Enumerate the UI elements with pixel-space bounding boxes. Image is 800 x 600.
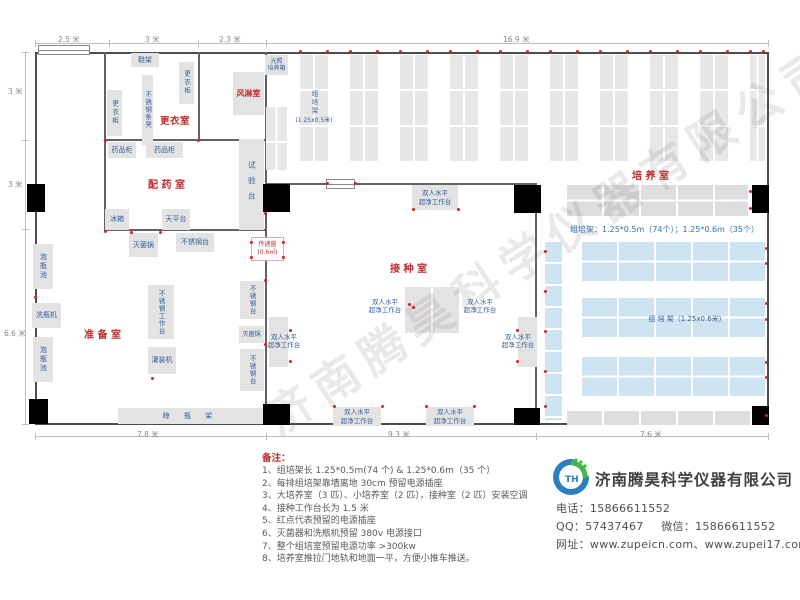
note-item: 2、每排组培架靠墙离地 30cm 预留电源插座 bbox=[262, 476, 443, 489]
power-outlet-dot bbox=[676, 50, 679, 53]
clean-bench-label: 超净工作台 bbox=[366, 306, 404, 314]
clean-bench-label: 超净工作台 bbox=[461, 306, 499, 314]
dimension-tick bbox=[768, 40, 769, 47]
power-outlet-dot bbox=[326, 182, 329, 185]
soak-pool-1: 泡瓶池 bbox=[33, 244, 53, 289]
power-outlet-dot bbox=[282, 241, 285, 244]
dim-top-3: 2.3 米 bbox=[219, 34, 241, 45]
balance-table: 天平台 bbox=[162, 209, 190, 230]
filling-machine: 灌装机 bbox=[148, 347, 176, 374]
dim-bottom-2: 9.3 米 bbox=[388, 429, 410, 440]
culture-rack-strip-short bbox=[266, 107, 287, 170]
note-item: 7、整个组培室预留电源功率 >300kw bbox=[262, 539, 416, 552]
structural-column bbox=[27, 184, 45, 212]
power-outlet-dot bbox=[765, 318, 768, 321]
power-outlet-dot bbox=[381, 405, 384, 408]
bottle-washer: 洗瓶机 bbox=[32, 303, 61, 328]
dim-left-1: 3 米 bbox=[8, 86, 23, 97]
dim-bottom-3: 7.6 米 bbox=[640, 429, 662, 440]
room-label-prep: 准 备 室 bbox=[84, 326, 121, 341]
power-outlet-dot bbox=[408, 303, 411, 306]
clean-bench-center-left bbox=[405, 287, 431, 333]
clean-bench-top: 双人水平超净工作台 bbox=[412, 185, 458, 210]
power-outlet-dot bbox=[349, 50, 352, 53]
soak-pool-2: 泡瓶池 bbox=[33, 337, 53, 382]
power-outlet-dot bbox=[197, 139, 200, 142]
qq-number: 57437467 bbox=[585, 520, 643, 533]
clean-bench-center-right-label: 双人水平超净工作台 bbox=[461, 298, 499, 315]
power-outlet-dot bbox=[264, 279, 267, 282]
clean-bench-right-wall-label: 双人水平超净工作台 bbox=[500, 333, 536, 350]
light-incubator: 光照培养箱 bbox=[265, 55, 288, 75]
dim-left-2: 3 米 bbox=[8, 179, 23, 190]
company-logo: TH bbox=[551, 457, 591, 497]
inoculation-sliding-door bbox=[326, 179, 355, 189]
wall-inoculation-top bbox=[265, 183, 537, 185]
blue-rack-band-1 bbox=[582, 242, 766, 281]
culture-bottom-gray-band bbox=[567, 411, 753, 425]
power-outlet-dot bbox=[765, 414, 768, 417]
power-outlet-dot bbox=[426, 50, 429, 53]
company-name: 济南腾昊科学仪器有限公司 bbox=[595, 468, 793, 490]
wechat-label: 微信： bbox=[661, 520, 695, 533]
light-incubator-label: 培养箱 bbox=[267, 65, 285, 73]
notes-title: 备注： bbox=[262, 450, 291, 464]
dimension-tick bbox=[266, 40, 267, 47]
entrance-sliding-door bbox=[38, 45, 90, 55]
dimension-tick bbox=[768, 433, 769, 440]
power-outlet-dot bbox=[599, 50, 602, 53]
rack-small-size: (1.25x0.5米) bbox=[288, 115, 340, 124]
contact-qq-line: QQ：57437467 微信：15866611552 bbox=[556, 518, 775, 534]
pass-window-size: (0.6㎡) bbox=[252, 249, 283, 257]
sterilizer-2: 灭菌锅 bbox=[239, 326, 264, 343]
note-item: 1、组培架长 1.25*0.5m(74 个) & 1.25*0.6m（35 个） bbox=[262, 463, 495, 476]
power-outlet-dot bbox=[412, 208, 415, 211]
power-outlet-dot bbox=[626, 50, 629, 53]
power-outlet-dot bbox=[151, 377, 154, 380]
power-outlet-dot bbox=[762, 50, 765, 53]
note-item: 4、接种工作台长为 1.5 米 bbox=[262, 501, 369, 514]
dimension-tick bbox=[22, 229, 29, 230]
structural-column bbox=[29, 399, 48, 424]
structural-column bbox=[263, 184, 290, 212]
clean-bench-label: 超净工作台 bbox=[434, 417, 467, 425]
air-shower-unit: 风淋室 bbox=[233, 72, 264, 115]
steel-table-3: 不锈钢台 bbox=[240, 349, 264, 391]
clean-bench-label: 双人水平 bbox=[434, 408, 467, 416]
power-outlet-dot bbox=[289, 360, 292, 363]
power-outlet-dot bbox=[299, 50, 302, 53]
phone-label: 电话： bbox=[556, 502, 590, 515]
room-label-inoculation: 接 种 室 bbox=[390, 260, 427, 275]
power-outlet-dot bbox=[544, 250, 547, 253]
clean-bench-label: 超净工作台 bbox=[500, 341, 536, 349]
structural-column bbox=[514, 185, 541, 213]
culture-rack-strip bbox=[650, 55, 678, 163]
power-outlet-dot bbox=[544, 405, 547, 408]
culture-rack-strip bbox=[400, 55, 428, 163]
dimension-tick bbox=[35, 40, 36, 47]
power-outlet-dot bbox=[264, 343, 267, 346]
power-outlet-dot bbox=[159, 231, 162, 234]
power-outlet-dot bbox=[549, 50, 552, 53]
clean-bench-label: 双人水平 bbox=[419, 189, 452, 197]
culture-rack-strip bbox=[600, 55, 628, 163]
culture-rack-strip bbox=[700, 55, 728, 163]
pass-window-label: 传递窗 bbox=[252, 241, 283, 249]
power-outlet-dot bbox=[544, 290, 547, 293]
floor-plan-page: 2.5 米 3 米 2.3 米 16.9 米 3 米 3 米 6.6 米 7.8… bbox=[0, 0, 800, 600]
websites: www.zupeicn.com、www.zupei17.com bbox=[590, 538, 800, 551]
power-outlet-dot bbox=[425, 405, 428, 408]
power-outlet-dot bbox=[516, 360, 519, 363]
contact-phone-line: 电话：15866611552 bbox=[556, 500, 670, 516]
power-outlet-dot bbox=[354, 182, 357, 185]
culture-rack-strip bbox=[350, 55, 378, 163]
bottle-drying-rack: 晾 瓶 架 bbox=[118, 408, 263, 424]
wall-inoculation-right bbox=[535, 183, 537, 423]
blue-rack-vertical-strip bbox=[545, 242, 562, 420]
dimension-tick bbox=[22, 52, 29, 53]
locker-left: 更衣柜 bbox=[107, 90, 122, 136]
power-outlet-dot bbox=[457, 208, 460, 211]
locker-right: 更衣柜 bbox=[179, 62, 194, 104]
dimension-tick bbox=[22, 140, 29, 141]
dim-bottom-1: 7.8 米 bbox=[137, 429, 159, 440]
power-outlet-dot bbox=[749, 207, 752, 210]
light-incubator-label: 光照 bbox=[267, 58, 285, 66]
qq-label: QQ： bbox=[556, 520, 585, 533]
power-outlet-dot bbox=[649, 50, 652, 53]
fridge: 冰箱 bbox=[105, 209, 129, 230]
power-outlet-dot bbox=[576, 50, 579, 53]
wall-changing-airshower bbox=[198, 52, 200, 141]
culture-rack-grid-band bbox=[567, 185, 748, 216]
power-outlet-dot bbox=[34, 296, 37, 299]
room-label-culture: 培 养 室 bbox=[632, 167, 669, 182]
rack-spec-line: 组培架：1.25*0.5m（74个）；1.25*0.6m（35个） bbox=[570, 224, 755, 235]
rack-small-label: 组培架 bbox=[303, 88, 325, 118]
power-outlet-dot bbox=[130, 231, 133, 234]
clean-bench-center-right bbox=[433, 287, 459, 333]
power-outlet-dot bbox=[749, 190, 752, 193]
power-outlet-dot bbox=[765, 361, 768, 364]
power-outlet-dot bbox=[726, 50, 729, 53]
dimension-tick bbox=[35, 433, 36, 440]
structural-column bbox=[752, 185, 769, 213]
steel-table-1: 不锈钢台 bbox=[176, 233, 214, 252]
logo-text: TH bbox=[565, 475, 579, 485]
web-label: 网址： bbox=[556, 538, 590, 551]
dimension-tick bbox=[536, 433, 537, 440]
power-outlet-dot bbox=[765, 247, 768, 250]
clean-bench-bottom-right: 双人水平超净工作台 bbox=[426, 407, 474, 426]
power-outlet-dot bbox=[749, 50, 752, 53]
clean-bench-label: 超净工作台 bbox=[419, 198, 452, 206]
note-item: 8、培养室推拉门地轨和地面一平，方便小推车推送。 bbox=[262, 551, 475, 564]
power-outlet-dot bbox=[250, 241, 253, 244]
shoe-rack: 鞋架 bbox=[131, 53, 159, 67]
power-outlet-dot bbox=[376, 50, 379, 53]
power-outlet-dot bbox=[544, 330, 547, 333]
steel-workbench: 不锈钢工作台 bbox=[148, 285, 174, 339]
power-outlet-dot bbox=[333, 405, 336, 408]
steel-table-2: 不锈钢台 bbox=[240, 281, 264, 319]
clean-bench-label: 超净工作台 bbox=[341, 417, 374, 425]
power-outlet-dot bbox=[516, 329, 519, 332]
pass-window: 传递窗 (0.6㎡) bbox=[251, 237, 284, 261]
phone-number: 15866611552 bbox=[590, 502, 670, 515]
dimension-tick bbox=[198, 40, 199, 47]
culture-rack-strip bbox=[550, 55, 578, 163]
dim-top-4: 16.9 米 bbox=[503, 34, 530, 45]
dim-top-1: 2.5 米 bbox=[58, 34, 80, 45]
clean-bench-left-wall-label: 双人水平超净工作台 bbox=[266, 333, 302, 350]
power-outlet-dot bbox=[765, 376, 768, 379]
rack-big-label: 组 培 架（1.25x0.6米） bbox=[637, 314, 737, 324]
medicine-cabinet-2: 药品柜 bbox=[146, 142, 183, 158]
room-label-changing: 更衣室 bbox=[160, 113, 190, 127]
power-outlet-dot bbox=[399, 50, 402, 53]
power-outlet-dot bbox=[473, 405, 476, 408]
dimension-tick bbox=[266, 433, 267, 440]
power-outlet-dot bbox=[526, 50, 529, 53]
clean-bench-center-left-label: 双人水平超净工作台 bbox=[366, 298, 404, 315]
note-item: 6、灭菌器和洗瓶机预留 380v 电源接口 bbox=[262, 526, 422, 539]
power-outlet-dot bbox=[104, 230, 107, 233]
room-label-dispensing: 配 药 室 bbox=[148, 176, 185, 191]
power-outlet-dot bbox=[264, 212, 267, 215]
structural-column bbox=[514, 408, 540, 425]
structural-column bbox=[263, 404, 290, 425]
dim-left-3: 6.6 米 bbox=[4, 328, 26, 339]
note-item: 5、红点代表预留的电源插座 bbox=[262, 513, 376, 526]
power-outlet-dot bbox=[326, 50, 329, 53]
contact-web-line: 网址：www.zupeicn.com、www.zupei17.com bbox=[556, 536, 800, 552]
clean-bench-bottom-left: 双人水平超净工作台 bbox=[333, 407, 381, 426]
note-item: 3、大培养室（3 匹）、小培养室（2 匹），接种室（2 匹）安装空调 bbox=[262, 488, 528, 501]
culture-rack-strip bbox=[500, 55, 528, 163]
culture-rack-strip bbox=[750, 55, 765, 163]
power-outlet-dot bbox=[699, 50, 702, 53]
clean-bench-label: 超净工作台 bbox=[266, 341, 302, 349]
power-outlet-dot bbox=[449, 50, 452, 53]
power-outlet-dot bbox=[765, 262, 768, 265]
sterilizer-1: 灭菌锅 bbox=[129, 233, 158, 257]
blue-rack-band-3 bbox=[582, 357, 766, 396]
power-outlet-dot bbox=[476, 50, 479, 53]
power-outlet-dot bbox=[282, 256, 285, 259]
culture-rack-strip bbox=[450, 55, 478, 163]
medicine-cabinet-1: 药品柜 bbox=[108, 142, 136, 158]
dim-line-left bbox=[25, 52, 26, 425]
wechat-number: 15866611552 bbox=[695, 520, 775, 533]
power-outlet-dot bbox=[250, 256, 253, 259]
dim-top-2: 3 米 bbox=[145, 34, 160, 45]
power-outlet-dot bbox=[104, 139, 107, 142]
clean-bench-label: 双人水平 bbox=[341, 408, 374, 416]
dimension-tick bbox=[109, 40, 110, 47]
power-outlet-dot bbox=[499, 50, 502, 53]
power-outlet-dot bbox=[289, 329, 292, 332]
power-outlet-dot bbox=[544, 370, 547, 373]
power-outlet-dot bbox=[412, 306, 415, 309]
dimension-tick bbox=[22, 424, 29, 425]
test-bench: 试验台 bbox=[239, 139, 264, 230]
steel-bench: 不锈钢条凳 bbox=[142, 75, 153, 145]
power-outlet-dot bbox=[765, 302, 768, 305]
